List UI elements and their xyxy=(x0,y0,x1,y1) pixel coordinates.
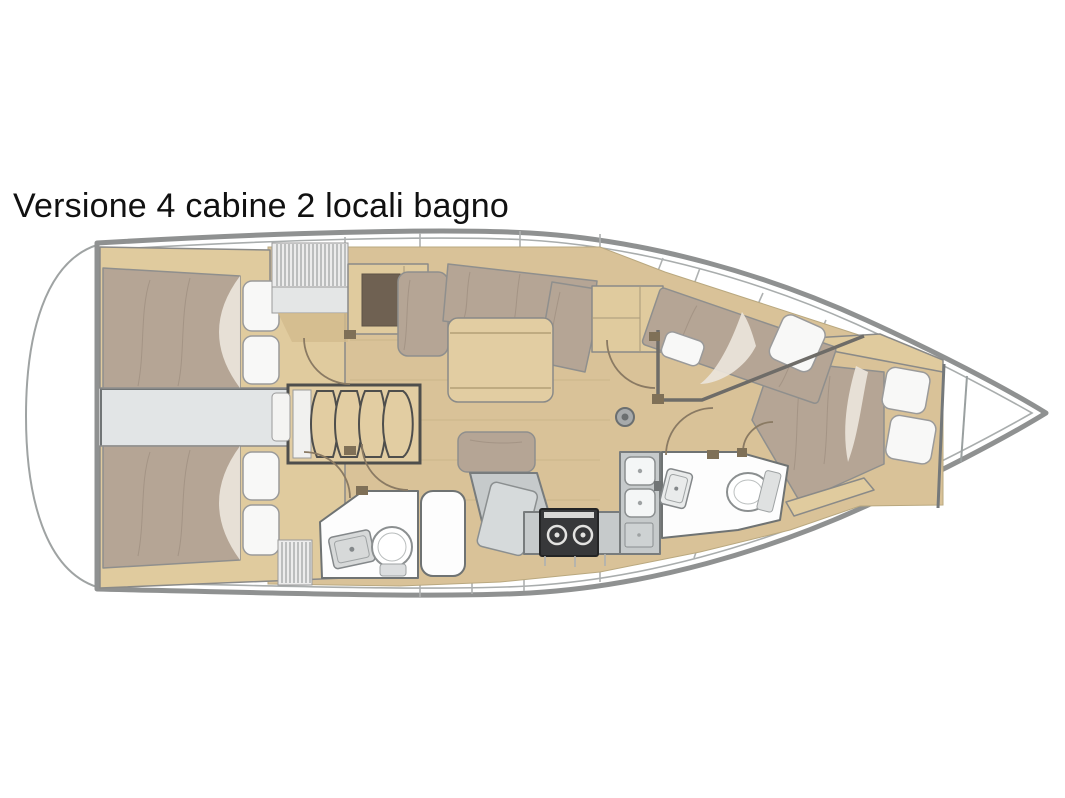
yacht-floor-plan xyxy=(0,0,1065,798)
chart-table-seat xyxy=(458,432,535,472)
mast-foot xyxy=(616,408,634,426)
liferaft-locker-hatch xyxy=(278,540,312,585)
salon-table xyxy=(448,318,553,402)
aft-starboard-pillow-2 xyxy=(243,505,279,555)
forward-head-toilet xyxy=(727,470,782,513)
engine-compartment xyxy=(101,389,290,447)
galley-stove xyxy=(540,509,598,556)
aft-head-shower xyxy=(421,491,465,576)
swim-platform xyxy=(26,245,97,587)
aft-cabin-starboard xyxy=(100,446,345,588)
tv-panel xyxy=(362,274,400,326)
engine-box-end xyxy=(272,393,290,441)
bow-pillow-2 xyxy=(884,414,937,465)
aft-port-pillow-2 xyxy=(243,336,279,384)
floor-plan-page: Versione 4 cabine 2 locali bagno xyxy=(0,0,1065,798)
bow-pillow-1 xyxy=(881,366,932,415)
galley-faucet xyxy=(654,481,662,491)
aft-starboard-pillow-1 xyxy=(243,452,279,500)
